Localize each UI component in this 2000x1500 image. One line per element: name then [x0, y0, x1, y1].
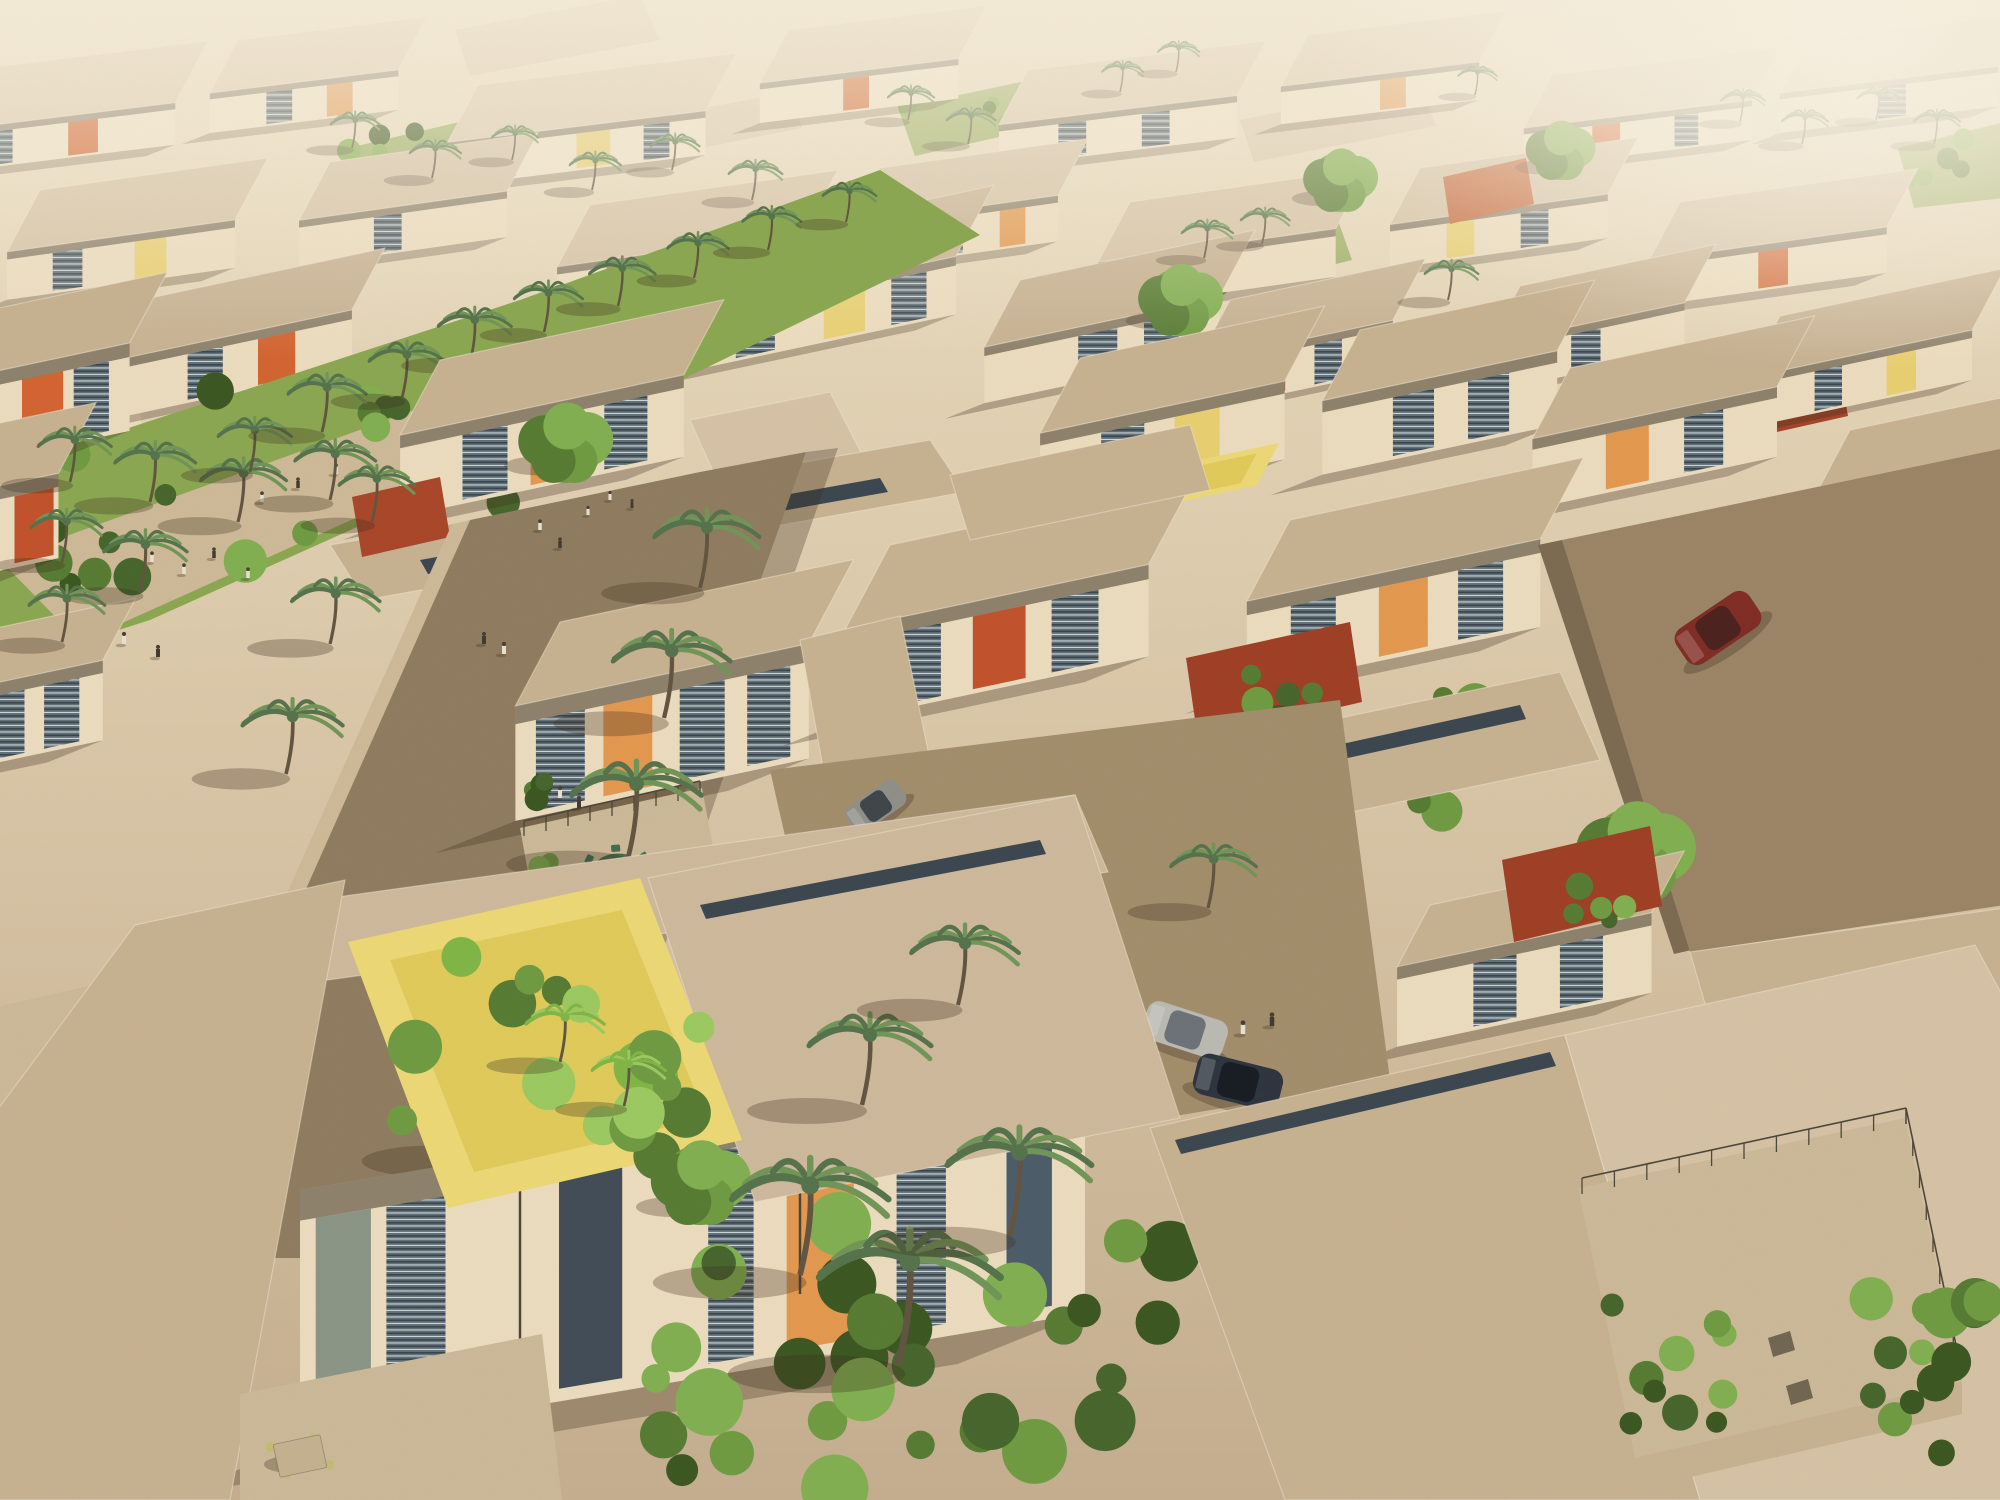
architectural-rendering — [0, 0, 2000, 1500]
rendering-svg — [0, 0, 2000, 1500]
film-grain — [0, 0, 2000, 1500]
scene-root — [0, 0, 2000, 1500]
